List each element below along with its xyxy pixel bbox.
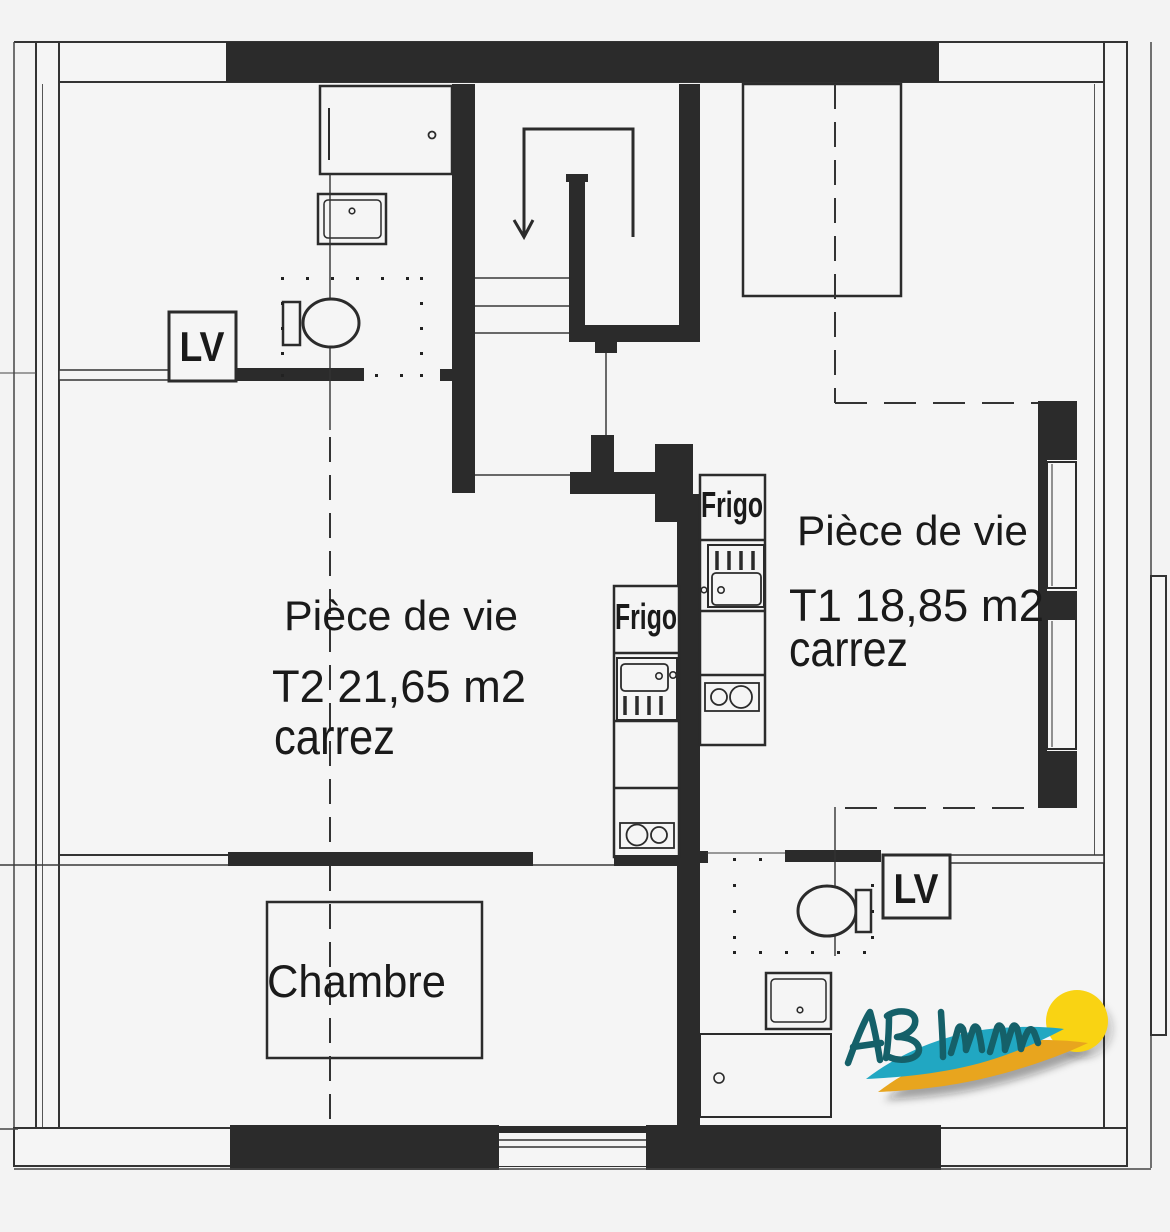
svg-text:Frigo: Frigo [615,596,677,637]
svg-text:T2 21,65 m2: T2 21,65 m2 [272,661,526,712]
svg-text:Chambre: Chambre [267,956,446,1007]
svg-text:Frigo: Frigo [701,484,763,525]
svg-text:Pièce de vie: Pièce de vie [797,507,1028,554]
svg-text:carrez: carrez [274,709,395,765]
svg-text:LV: LV [894,865,939,912]
svg-text:Pièce de vie: Pièce de vie [284,592,518,639]
svg-text:carrez: carrez [789,621,908,677]
svg-text:LV: LV [180,323,225,370]
